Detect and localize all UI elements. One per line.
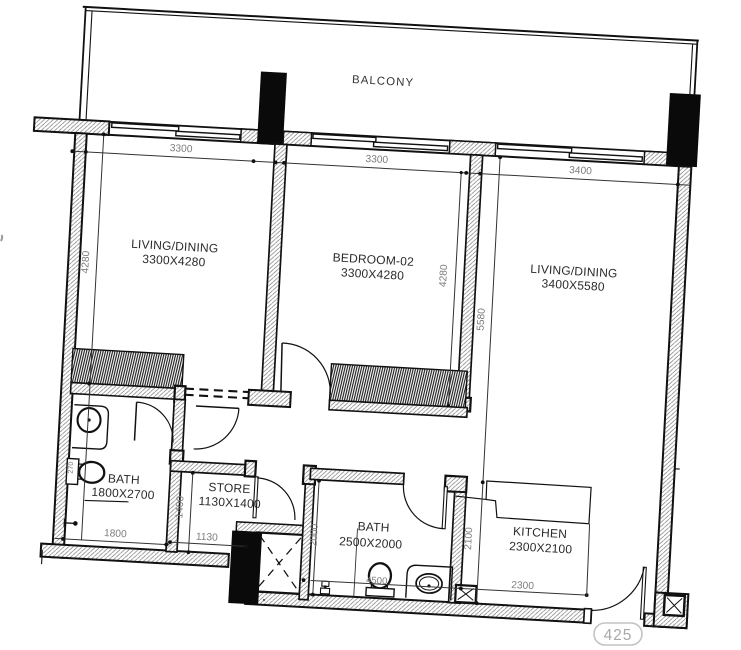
svg-text:2300: 2300: [511, 580, 535, 592]
svg-text:270: 270: [66, 461, 76, 473]
svg-text:3300: 3300: [169, 143, 193, 155]
svg-text:4500: 4500: [366, 575, 388, 587]
svg-text:425: 425: [604, 627, 633, 644]
svg-text:2000: 2000: [308, 523, 320, 547]
svg-text:KITCHEN: KITCHEN: [513, 524, 568, 541]
svg-text:2100: 2100: [463, 527, 475, 551]
svg-text:5580: 5580: [476, 308, 488, 332]
svg-text:3400: 3400: [569, 165, 593, 177]
svg-text:1400: 1400: [174, 495, 186, 519]
svg-text:BATH: BATH: [108, 471, 141, 487]
svg-text:3300: 3300: [365, 154, 389, 166]
svg-text:4280: 4280: [438, 264, 450, 288]
svg-text:4280: 4280: [80, 250, 92, 274]
svg-text:1800: 1800: [104, 528, 128, 540]
svg-text:1130: 1130: [196, 532, 219, 544]
svg-text:BATH: BATH: [357, 519, 390, 535]
